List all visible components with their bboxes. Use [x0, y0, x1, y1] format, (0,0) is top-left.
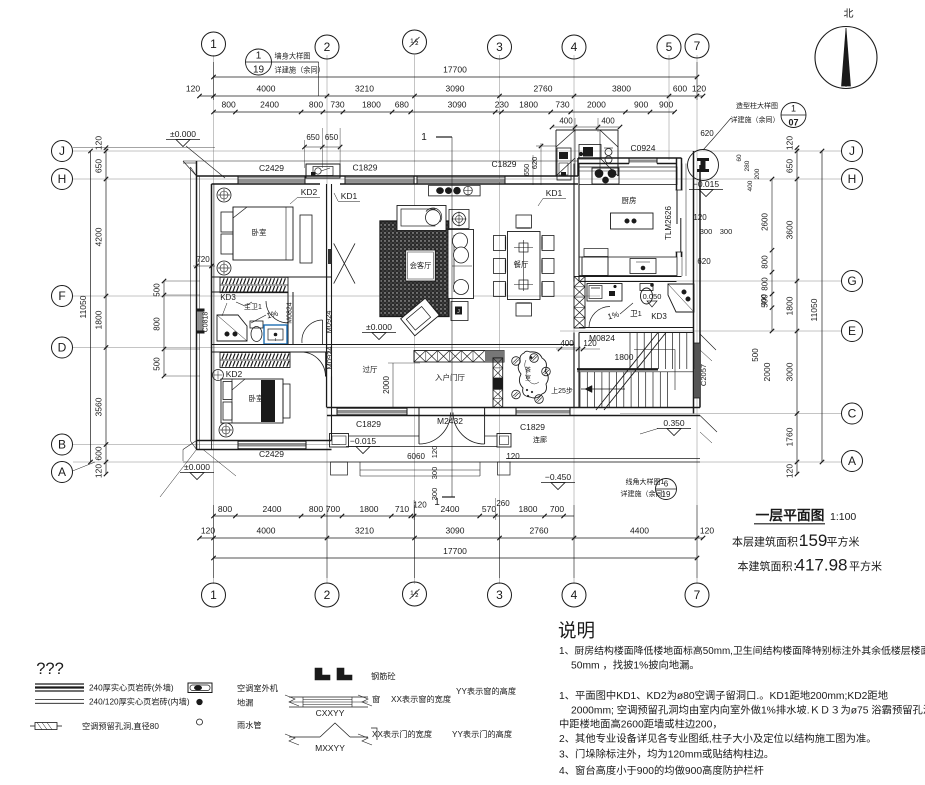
svg-text:17700: 17700 — [443, 546, 467, 556]
svg-text:1760: 1760 — [785, 427, 795, 446]
svg-text:120: 120 — [700, 526, 714, 536]
svg-text:1: 1 — [791, 104, 796, 114]
svg-text:7: 7 — [694, 39, 701, 53]
svg-text:H: H — [58, 172, 67, 186]
svg-text:500: 500 — [153, 283, 162, 297]
svg-text:窗: 窗 — [372, 694, 380, 704]
svg-text:1: 1 — [210, 37, 217, 51]
svg-text:3000: 3000 — [785, 362, 795, 381]
svg-text:YY表示门的高度: YY表示门的高度 — [452, 729, 512, 739]
svg-text:1800: 1800 — [519, 504, 538, 514]
svg-text:G: G — [847, 274, 856, 288]
svg-text:3210: 3210 — [355, 84, 374, 94]
svg-text:C1829: C1829 — [520, 422, 545, 432]
svg-text:500: 500 — [751, 348, 760, 362]
svg-text:3090: 3090 — [446, 526, 465, 536]
svg-text:900: 900 — [634, 100, 648, 110]
svg-text:620: 620 — [700, 129, 714, 138]
svg-text:1800: 1800 — [360, 504, 379, 514]
svg-text:680: 680 — [395, 100, 409, 110]
svg-text:A: A — [58, 465, 66, 479]
svg-text:650: 650 — [785, 159, 795, 173]
svg-text:3: 3 — [496, 588, 503, 602]
svg-text:空调预留孔洞,直径80: 空调预留孔洞,直径80 — [82, 721, 159, 731]
svg-text:茶: 茶 — [525, 366, 531, 374]
svg-text:400: 400 — [560, 339, 574, 348]
svg-text:120: 120 — [785, 464, 795, 478]
svg-text:E: E — [848, 324, 856, 338]
svg-text:KD1: KD1 — [546, 188, 563, 198]
svg-text:1: 1 — [210, 588, 217, 602]
svg-text:说明: 说明 — [558, 620, 595, 641]
svg-text:一层平面图: 一层平面图 — [756, 508, 825, 523]
svg-text:详建施（余同）: 详建施（余同） — [731, 115, 780, 124]
svg-text:5: 5 — [666, 40, 673, 54]
svg-text:2400: 2400 — [260, 100, 279, 110]
svg-text:C0924: C0924 — [630, 143, 655, 153]
svg-text:0.350: 0.350 — [663, 418, 685, 428]
svg-text:800: 800 — [761, 255, 770, 269]
svg-text:400: 400 — [761, 294, 768, 306]
svg-text:KD3: KD3 — [651, 312, 667, 321]
svg-text:MXXYY: MXXYY — [315, 743, 345, 753]
svg-text:???: ??? — [36, 660, 64, 678]
svg-text:620: 620 — [530, 157, 539, 170]
svg-text:300: 300 — [430, 467, 439, 480]
svg-text:11050: 11050 — [78, 295, 88, 318]
svg-text:2: 2 — [324, 588, 331, 602]
svg-text:±0.000: ±0.000 — [170, 129, 196, 139]
svg-text:159: 159 — [799, 531, 827, 550]
svg-text:餐厅: 餐厅 — [514, 260, 529, 269]
svg-text:4000: 4000 — [257, 84, 276, 94]
svg-text:2600: 2600 — [761, 213, 770, 231]
svg-text:570: 570 — [482, 504, 496, 514]
svg-text:连廊: 连廊 — [533, 435, 547, 444]
svg-text:M0824: M0824 — [287, 302, 294, 324]
svg-text:−0.015: −0.015 — [693, 179, 720, 189]
svg-text:3210: 3210 — [355, 526, 374, 536]
svg-text:CXXYY: CXXYY — [316, 708, 345, 718]
svg-text:TLM2626: TLM2626 — [664, 206, 673, 240]
svg-text:650: 650 — [306, 133, 320, 142]
svg-text:120: 120 — [692, 84, 706, 94]
svg-text:2760: 2760 — [534, 84, 553, 94]
svg-text:±0.000: ±0.000 — [184, 462, 210, 472]
svg-text:C: C — [848, 406, 857, 420]
svg-text:中距楼地面高2600距墙或柱边200，: 中距楼地面高2600距墙或柱边200， — [559, 718, 723, 731]
svg-text:6060: 6060 — [407, 452, 425, 461]
svg-text:J: J — [59, 144, 65, 158]
svg-text:C2429: C2429 — [259, 163, 284, 173]
svg-text:2000: 2000 — [762, 362, 772, 381]
svg-text:120: 120 — [506, 452, 520, 461]
svg-text:1800: 1800 — [519, 100, 538, 110]
svg-text:800: 800 — [309, 100, 323, 110]
svg-text:400: 400 — [601, 117, 615, 126]
svg-text:800: 800 — [218, 504, 232, 514]
svg-text:YY表示窗的高度: YY表示窗的高度 — [456, 686, 516, 696]
svg-text:280: 280 — [744, 160, 751, 171]
svg-text:600: 600 — [94, 446, 104, 460]
svg-text:C2429: C2429 — [259, 449, 284, 459]
svg-text:120: 120 — [94, 136, 104, 150]
svg-text:±0.000: ±0.000 — [366, 322, 392, 332]
svg-text:4200: 4200 — [94, 227, 104, 246]
svg-text:6: 6 — [664, 480, 669, 489]
svg-text:C1829: C1829 — [352, 163, 377, 173]
svg-text:260: 260 — [496, 499, 510, 508]
svg-text:120: 120 — [186, 84, 200, 94]
svg-text:700: 700 — [326, 504, 340, 514]
svg-text:本建筑面积：: 本建筑面积： — [738, 559, 804, 573]
svg-text:1800: 1800 — [94, 310, 104, 329]
svg-text:3600: 3600 — [785, 220, 795, 239]
svg-text:4、窗台高度小于900的均做900高度防护栏杆: 4、窗台高度小于900的均做900高度防护栏杆 — [559, 764, 764, 777]
svg-text:3560: 3560 — [94, 397, 104, 416]
svg-text:C0818: C0818 — [203, 312, 210, 333]
svg-text:1:100: 1:100 — [830, 511, 856, 523]
svg-text:230: 230 — [495, 100, 509, 110]
svg-text:过厅: 过厅 — [363, 364, 378, 374]
svg-text:1800: 1800 — [362, 100, 381, 110]
svg-text:造型柱大样图: 造型柱大样图 — [736, 101, 778, 110]
svg-text:本层建筑面积：: 本层建筑面积： — [732, 535, 809, 549]
svg-text:900: 900 — [659, 100, 673, 110]
svg-text:4: 4 — [571, 588, 578, 602]
svg-text:300: 300 — [700, 227, 713, 236]
svg-text:钢筋砼: 钢筋砼 — [371, 671, 396, 681]
svg-text:120: 120 — [583, 339, 597, 348]
svg-text:1、平面图中KD1、KD2为ø80空调子留洞口.。KD1距地: 1、平面图中KD1、KD2为ø80空调子留洞口.。KD1距地200mm;KD2距… — [559, 689, 888, 702]
svg-text:300: 300 — [720, 227, 733, 236]
svg-text:卫1: 卫1 — [630, 309, 642, 318]
svg-text:墙身大样图: 墙身大样图 — [275, 52, 311, 61]
svg-text:50mm ，找披1%披向地漏。: 50mm ，找披1%披向地漏。 — [571, 659, 700, 672]
svg-text:2、其他专业设备详见各专业图纸,柱子大小及定位以结构施工图为: 2、其他专业设备详见各专业图纸,柱子大小及定位以结构施工图为准。 — [559, 732, 877, 745]
svg-text:120: 120 — [94, 464, 104, 478]
svg-text:400: 400 — [747, 180, 754, 191]
svg-text:1800: 1800 — [615, 352, 634, 362]
svg-text:4: 4 — [571, 40, 578, 54]
svg-text:1: 1 — [256, 51, 262, 62]
svg-text:室: 室 — [525, 374, 531, 382]
svg-text:厨房: 厨房 — [622, 195, 637, 205]
svg-text:120: 120 — [785, 136, 795, 150]
svg-text:雨水管: 雨水管 — [237, 720, 262, 730]
svg-text:−0.450: −0.450 — [545, 472, 572, 482]
svg-text:3: 3 — [496, 40, 503, 54]
svg-text:800: 800 — [761, 277, 770, 291]
svg-text:3、门垛除标注外，均为120mm或贴结构柱边。: 3、门垛除标注外，均为120mm或贴结构柱边。 — [559, 748, 774, 761]
svg-text:B: B — [58, 437, 66, 451]
svg-text:2760: 2760 — [530, 526, 549, 536]
svg-text:240厚实心页岩砖(外墙): 240厚实心页岩砖(外墙) — [89, 683, 174, 693]
svg-text:1: 1 — [421, 132, 427, 143]
svg-text:650: 650 — [94, 159, 104, 173]
svg-text:17700: 17700 — [443, 65, 467, 75]
svg-text:F: F — [58, 289, 65, 303]
svg-text:417.98: 417.98 — [796, 556, 848, 575]
svg-text:11050: 11050 — [809, 298, 819, 321]
svg-text:KD3: KD3 — [220, 293, 236, 302]
svg-text:650: 650 — [325, 133, 339, 142]
svg-text:卧室: 卧室 — [252, 227, 267, 237]
svg-text:3090: 3090 — [446, 84, 465, 94]
svg-text:C1829: C1829 — [491, 159, 516, 169]
svg-text:KD2: KD2 — [226, 369, 243, 379]
svg-text:XX表示门的宽度: XX表示门的宽度 — [372, 729, 432, 739]
svg-text:200: 200 — [754, 168, 761, 179]
svg-text:北: 北 — [844, 8, 854, 20]
svg-text:800: 800 — [309, 504, 323, 514]
svg-text:4000: 4000 — [257, 526, 276, 536]
svg-text:M2432: M2432 — [437, 416, 463, 426]
svg-text:720: 720 — [196, 255, 210, 264]
svg-text:H: H — [848, 172, 857, 186]
svg-text:730: 730 — [330, 100, 344, 110]
svg-text:C1829: C1829 — [356, 419, 381, 429]
svg-text:120: 120 — [430, 446, 439, 459]
svg-text:D: D — [58, 340, 67, 354]
svg-text:240/120厚实心页岩砖(内墙): 240/120厚实心页岩砖(内墙) — [89, 697, 190, 707]
svg-text:07: 07 — [788, 118, 798, 128]
svg-text:800: 800 — [222, 100, 236, 110]
svg-text:J: J — [849, 144, 855, 158]
svg-text:120: 120 — [413, 501, 427, 510]
svg-text:2400: 2400 — [441, 504, 460, 514]
svg-text:上25步: 上25步 — [551, 386, 573, 395]
svg-text:1800: 1800 — [785, 296, 795, 315]
svg-text:60: 60 — [736, 154, 743, 162]
svg-text:A: A — [848, 454, 856, 468]
svg-text:2: 2 — [324, 40, 331, 54]
svg-text:KD2: KD2 — [301, 187, 318, 197]
svg-text:入户门厅: 入户门厅 — [435, 372, 465, 382]
svg-text:详建施（余同）: 详建施（余同） — [275, 66, 325, 75]
svg-text:1、厨房结构楼面降低楼地面标高50mm,卫生间结构楼面降特别: 1、厨房结构楼面降低楼地面标高50mm,卫生间结构楼面降特别标注外其余低楼层楼面… — [559, 644, 925, 657]
svg-text:3800: 3800 — [612, 84, 631, 94]
svg-text:0.050: 0.050 — [643, 292, 662, 301]
svg-text:19: 19 — [253, 65, 265, 76]
svg-text:730: 730 — [555, 100, 569, 110]
svg-text:空调室外机: 空调室外机 — [237, 683, 279, 693]
svg-text:会客厅: 会客厅 — [410, 261, 432, 270]
svg-text:主卫1: 主卫1 — [244, 302, 262, 311]
svg-text:2000: 2000 — [587, 100, 606, 110]
svg-text:600: 600 — [673, 84, 687, 94]
svg-text:C2057: C2057 — [699, 364, 708, 386]
svg-text:平方米: 平方米 — [827, 535, 860, 549]
svg-text:3090: 3090 — [448, 100, 467, 110]
svg-text:7: 7 — [694, 588, 701, 602]
svg-text:800: 800 — [153, 317, 162, 331]
svg-text:2000: 2000 — [382, 376, 391, 394]
svg-text:−0.015: −0.015 — [350, 436, 377, 446]
svg-text:M0924: M0924 — [324, 311, 333, 334]
svg-text:500: 500 — [153, 357, 162, 371]
svg-text:700: 700 — [550, 504, 564, 514]
svg-text:400: 400 — [559, 117, 573, 126]
svg-text:300: 300 — [430, 488, 439, 501]
svg-text:XX表示窗的宽度: XX表示窗的宽度 — [391, 694, 451, 704]
svg-text:2400: 2400 — [263, 504, 282, 514]
svg-text:19: 19 — [662, 490, 671, 499]
svg-text:地漏: 地漏 — [237, 698, 253, 708]
svg-text:4400: 4400 — [630, 526, 649, 536]
svg-text:120: 120 — [201, 526, 215, 536]
svg-text:KD1: KD1 — [341, 191, 358, 201]
svg-text:710: 710 — [395, 504, 409, 514]
svg-text:2000mm; 空调预留孔洞均由室内向室外做1%排水坡.ＫＤ: 2000mm; 空调预留孔洞均由室内向室外做1%排水坡.ＫＤ３为ø75 浴霸预留… — [571, 704, 925, 717]
svg-text:平方米: 平方米 — [849, 559, 882, 573]
